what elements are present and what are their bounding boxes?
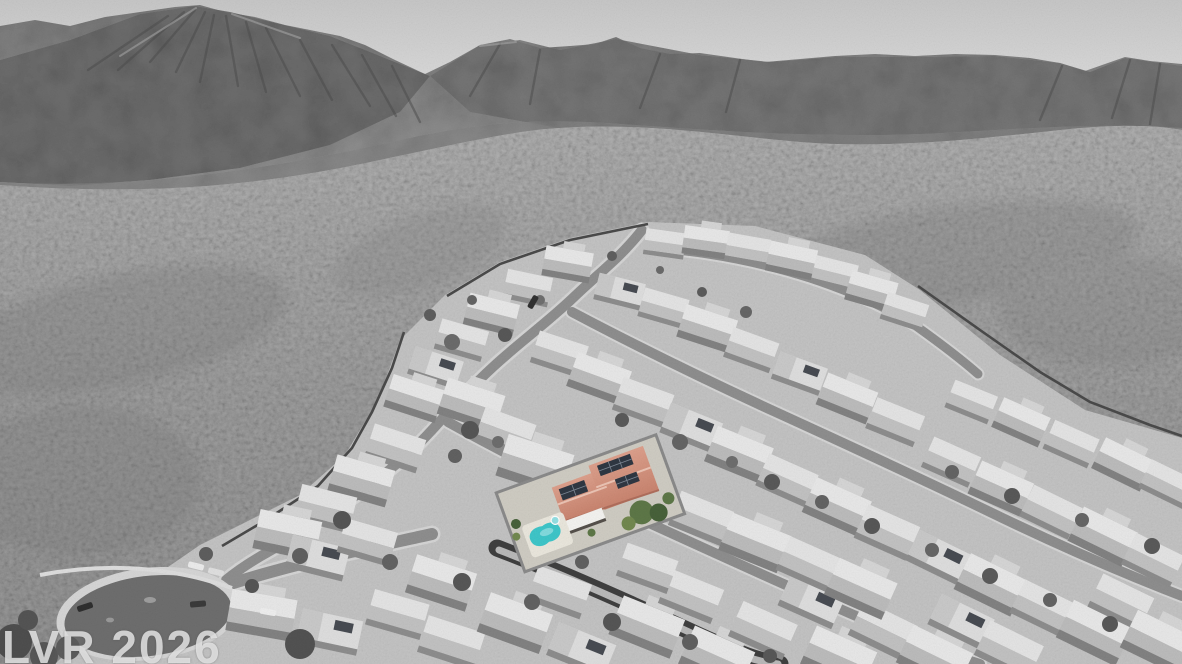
photo-canvas (0, 0, 1182, 664)
aerial-photo: LVR 2026 (0, 0, 1182, 664)
film-grain-overlay (0, 0, 1182, 664)
